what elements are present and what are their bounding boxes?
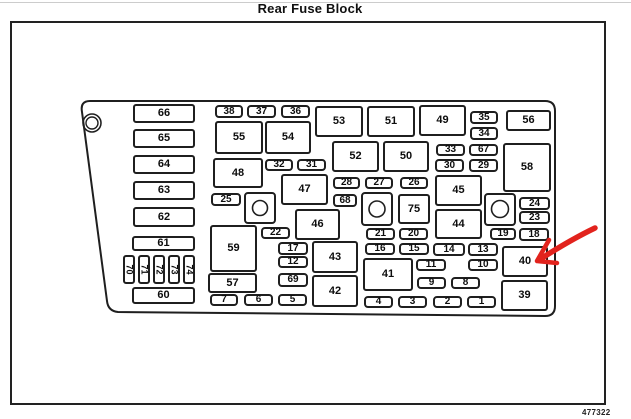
- figure-number: 477322: [582, 408, 611, 417]
- red-arrow-annotation: [0, 0, 631, 419]
- rear-fuse-block-diagram: Rear Fuse Block 666564636261607071727374…: [0, 0, 631, 419]
- red-arrow-shaft: [542, 228, 595, 258]
